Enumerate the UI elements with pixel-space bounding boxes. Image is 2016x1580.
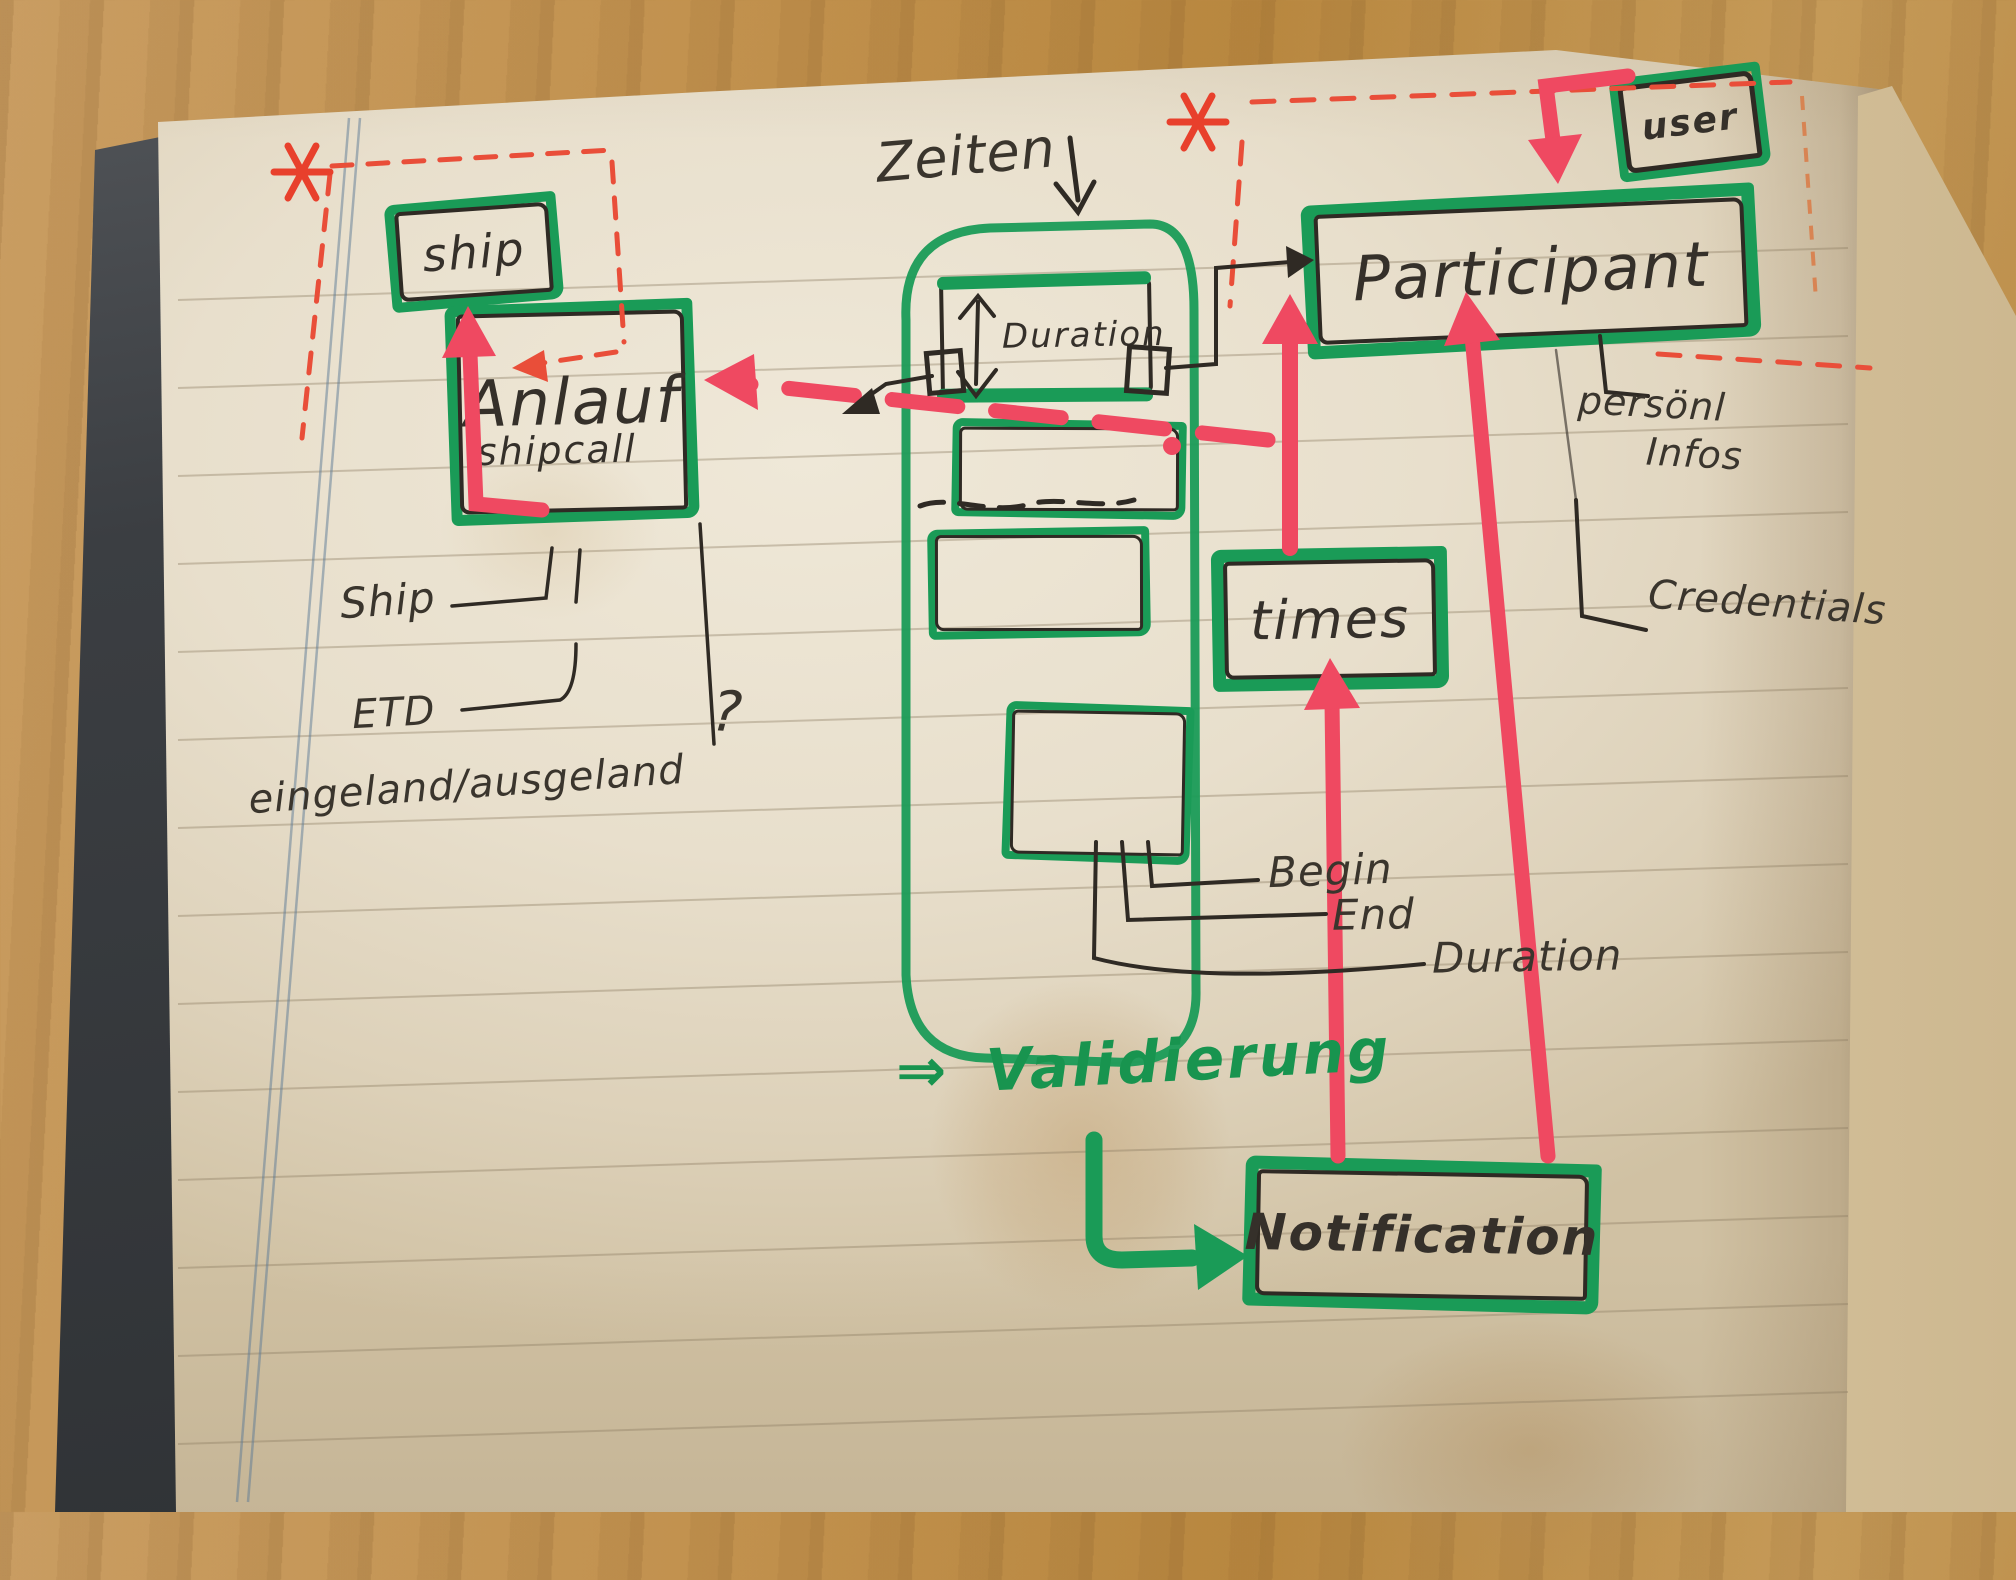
notebook-photo: { "diagram": { "nodes": { "ship": { "lab… [0, 0, 2016, 1512]
eta-attribute-label: ETD [351, 688, 437, 738]
user-node-label: user [1639, 96, 1741, 149]
duration-green-bottom [937, 387, 1153, 403]
personal-infos-label-line1: persönl [1577, 378, 1727, 430]
duration-node: Duration [939, 278, 1153, 396]
duration-node-label: Duration [1002, 314, 1166, 357]
inner-box-3 [1001, 701, 1194, 865]
ship-node-label: ship [421, 221, 528, 282]
end-label: End [1332, 889, 1416, 939]
validierung-arrow-glyph: ⇒ [896, 1036, 947, 1106]
times-node: times [1211, 546, 1449, 692]
notification-node-label: Notification [1244, 1203, 1599, 1267]
duration-attribute-label: Duration [1432, 930, 1623, 982]
participant-node-label: Participant [1351, 227, 1710, 315]
inner-box-2 [927, 526, 1151, 640]
ship-attribute-label: Ship [338, 573, 437, 629]
anlauf-shipcall-node: Anlauf shipcall [444, 298, 700, 527]
times-node-label: times [1249, 586, 1410, 652]
participant-node: Participant [1300, 182, 1761, 360]
question-mark-label: ? [710, 679, 745, 746]
personal-infos-label-line2: Infos [1645, 429, 1744, 478]
user-node: user [1608, 61, 1772, 183]
shipcall-node-sublabel: shipcall [462, 427, 637, 475]
ship-node: ship [384, 191, 565, 314]
inner-box-1 [951, 418, 1187, 520]
notification-node: Notification [1242, 1155, 1602, 1314]
